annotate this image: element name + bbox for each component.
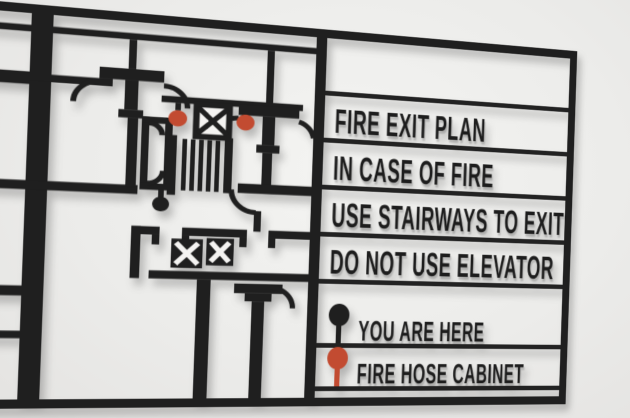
lower-walls	[193, 279, 283, 398]
wall	[0, 171, 138, 194]
wall	[0, 281, 22, 295]
pin-stem	[175, 103, 181, 111]
message-text: DO NOT USE ELEVATOR	[329, 245, 554, 284]
floor-plan	[0, 0, 317, 401]
wall-photo: FIRE EXIT PLAN IN CASE OF FIRE USE STAIR…	[0, 0, 630, 418]
wall	[0, 329, 20, 339]
you-are-here-pin-icon	[327, 302, 351, 345]
you-are-here-dot	[152, 196, 169, 211]
fire-exit-plan-sign: FIRE EXIT PLAN IN CASE OF FIRE USE STAIR…	[0, 0, 577, 410]
message-row: DO NOT USE ELEVATOR	[329, 240, 564, 285]
utility-x-box	[196, 104, 230, 138]
door-arc	[298, 122, 313, 139]
door-arc	[147, 170, 163, 184]
door-column-left	[95, 37, 165, 188]
door-arc	[149, 123, 163, 135]
legend-label: FIRE HOSE CABINET	[356, 359, 524, 388]
wall	[0, 58, 30, 84]
legend-label: YOU ARE HERE	[358, 316, 485, 346]
stairway	[167, 135, 234, 198]
legend-row-fire-hose: FIRE HOSE CABINET	[325, 343, 560, 388]
fire-hose-cabinet-pin	[236, 114, 255, 131]
elevator-x-box	[170, 238, 203, 268]
elevator-x-box	[206, 238, 234, 266]
legend-row-you-are-here: YOU ARE HERE	[327, 300, 562, 347]
panel-rule	[315, 386, 559, 391]
wall	[238, 183, 312, 196]
fire-hose-pin-icon	[325, 345, 349, 388]
